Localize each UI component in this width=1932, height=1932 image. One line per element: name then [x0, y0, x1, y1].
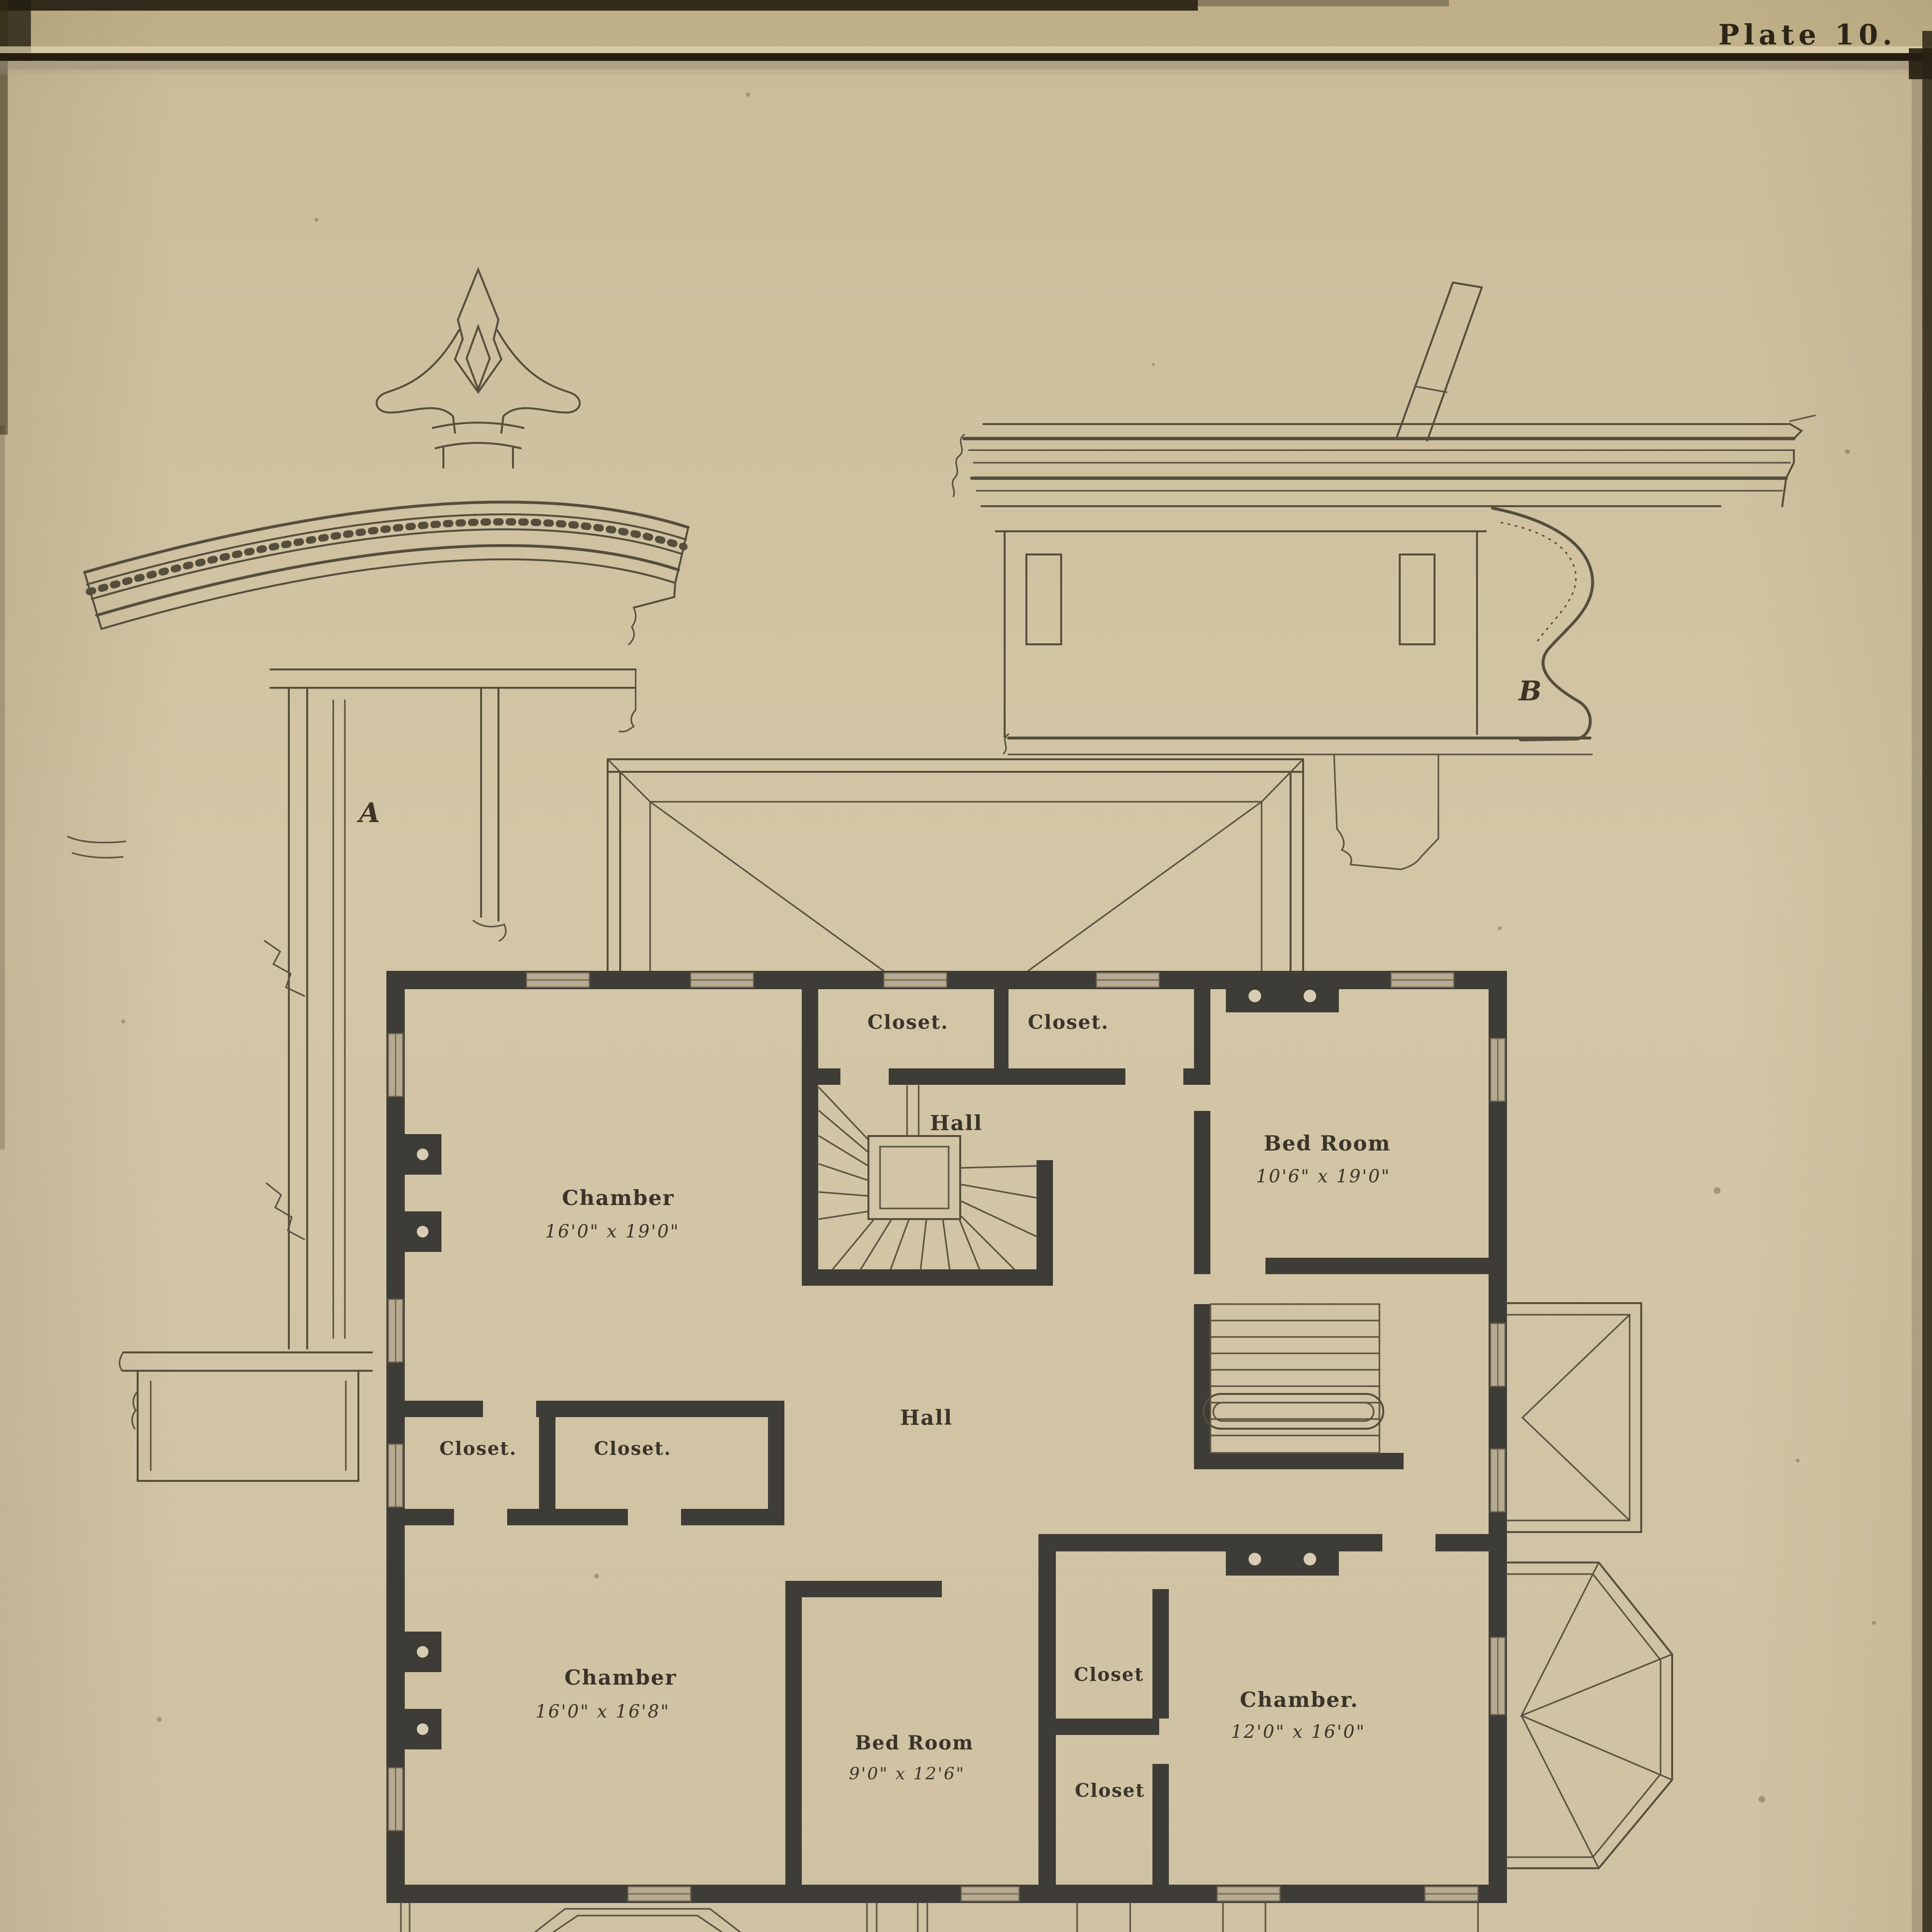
- wall-segment: [1038, 1534, 1056, 1885]
- room-label-chamber: Chamber: [562, 1186, 675, 1210]
- left-edge-shadow-fade: [0, 425, 5, 1150]
- wall-segment: [785, 1581, 942, 1597]
- wall-segment: [539, 1417, 555, 1509]
- detail-a-letter: A: [356, 797, 380, 829]
- scanned-plate-page: Plate 10.: [0, 0, 1932, 1932]
- room-label-chamber: Chamber: [565, 1666, 677, 1690]
- room-label-hall: Hall: [900, 1406, 952, 1430]
- right-edge-shadow: [1922, 31, 1932, 1932]
- wall-segment: [1037, 1160, 1053, 1286]
- rule-line: [0, 53, 1932, 61]
- wall-segment: [802, 1068, 840, 1085]
- wall-segment: [1265, 1258, 1490, 1274]
- rule-shadow: [0, 61, 1932, 70]
- rule-highlight: [0, 46, 1932, 53]
- room-label-closet: Closet.: [867, 1011, 949, 1034]
- wall-segment: [681, 1509, 784, 1525]
- room-label-bed-room: Bed Room: [1264, 1132, 1391, 1156]
- top-edge-shadow-fade: [1198, 0, 1449, 6]
- wall-segment: [889, 1068, 1125, 1085]
- wall-segment: [994, 988, 1009, 1070]
- room-label-closet: Closet: [1074, 1663, 1144, 1685]
- wall-segment: [768, 1401, 784, 1525]
- wall-segment: [1435, 1534, 1490, 1551]
- chimney-block: [1226, 971, 1339, 1012]
- wall-segment: [1194, 1453, 1404, 1469]
- wall-segment: [1194, 1304, 1210, 1454]
- wall-segment: [404, 1509, 454, 1525]
- room-dims: 9'0" x 12'6": [849, 1764, 966, 1784]
- room-label-bed-room: Bed Room: [855, 1732, 974, 1754]
- wall-segment: [1194, 1111, 1210, 1274]
- wall-segment: [507, 1509, 628, 1525]
- wall-segment: [802, 1269, 1053, 1286]
- wall-segment: [386, 971, 405, 1903]
- plate-number-label: Plate 10.: [1718, 18, 1896, 51]
- wall-segment: [1152, 1764, 1169, 1885]
- room-label-closet: Closet.: [594, 1437, 671, 1459]
- room-label-closet: Closet.: [1028, 1011, 1109, 1034]
- room-dims: 10'6" x 19'0": [1256, 1166, 1391, 1187]
- room-label-hall: Hall: [930, 1111, 982, 1136]
- room-label-closet: Closet: [1075, 1779, 1145, 1801]
- wall-segment: [386, 1885, 1507, 1903]
- wall-segment: [1056, 1719, 1159, 1735]
- detail-b-letter: B: [1518, 675, 1541, 707]
- wall-segment: [785, 1597, 802, 1885]
- right-edge-shadow-fade: [1912, 58, 1922, 1932]
- room-dims: 12'0" x 16'0": [1231, 1721, 1365, 1742]
- wall-segment: [536, 1401, 784, 1417]
- wall-segment: [1194, 988, 1210, 1075]
- top-edge-shadow: [0, 0, 1198, 11]
- wall-segment: [404, 1401, 483, 1417]
- chimney-block: [1226, 1534, 1339, 1576]
- rule-shadow-fade: [0, 70, 1932, 74]
- wall-segment: [1152, 1589, 1169, 1719]
- room-dims: 16'0" x 19'0": [545, 1221, 680, 1242]
- plate-drawing: Plate 10.: [0, 0, 1932, 1932]
- wall-segment: [802, 988, 818, 1286]
- wall-segment: [1489, 971, 1507, 1903]
- room-dims: 16'0" x 16'8": [535, 1701, 670, 1722]
- room-label-chamber: Chamber.: [1240, 1688, 1359, 1712]
- room-label-closet: Closet.: [440, 1437, 517, 1459]
